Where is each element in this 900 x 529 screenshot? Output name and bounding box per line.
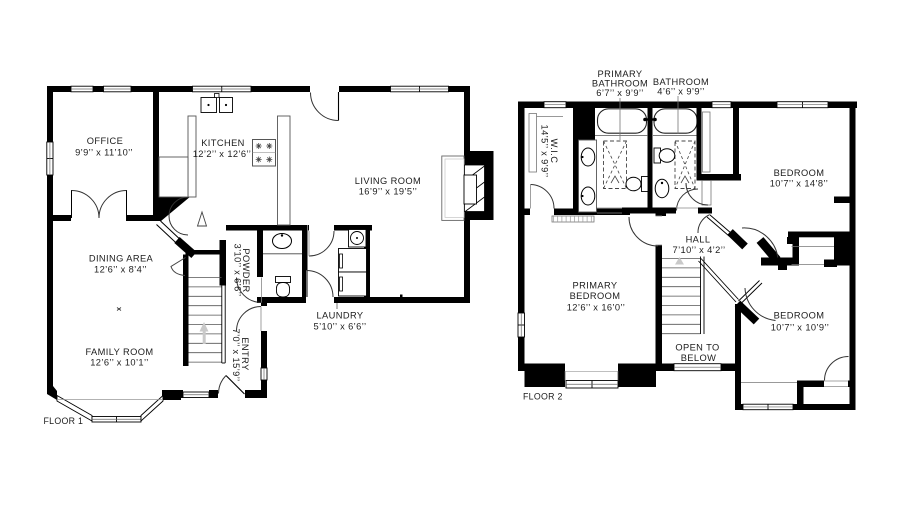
svg-text:FLOOR 2: FLOOR 2 <box>523 392 563 402</box>
svg-text:10’7’’ x 14’8’’: 10’7’’ x 14’8’’ <box>770 179 829 189</box>
svg-text:7’0’’ x 15’9’’: 7’0’’ x 15’9’’ <box>231 329 241 382</box>
svg-text:FAMILY ROOM: FAMILY ROOM <box>85 347 153 357</box>
svg-text:BEDROOM: BEDROOM <box>774 168 825 178</box>
svg-text:7’10’’ x 4’2’’: 7’10’’ x 4’2’’ <box>673 245 726 255</box>
svg-text:PRIMARY: PRIMARY <box>573 281 618 291</box>
svg-text:OPEN TO: OPEN TO <box>675 343 719 353</box>
svg-text:HALL: HALL <box>686 235 711 245</box>
svg-text:5’10’’ x 6’6’’: 5’10’’ x 6’6’’ <box>314 322 367 332</box>
svg-text:BELOW: BELOW <box>681 353 717 363</box>
svg-text:3’10’’ x 6’6’’: 3’10’’ x 6’6’’ <box>233 244 243 297</box>
svg-text:12’6’’ x 8’4’’: 12’6’’ x 8’4’’ <box>94 265 147 275</box>
svg-text:14’5’’ x 9’9’’: 14’5’’ x 9’9’’ <box>540 125 550 178</box>
svg-text:10’7’’ x 10’9’’: 10’7’’ x 10’9’’ <box>771 323 830 333</box>
svg-text:12’6’’ x 10’1’’: 12’6’’ x 10’1’’ <box>90 358 149 368</box>
svg-text:OFFICE: OFFICE <box>87 136 124 146</box>
svg-text:LAUNDRY: LAUNDRY <box>316 311 363 321</box>
svg-text:BEDROOM: BEDROOM <box>570 291 621 301</box>
svg-text:W.I.C: W.I.C <box>549 139 559 164</box>
svg-text:KITCHEN: KITCHEN <box>201 138 245 148</box>
svg-text:BATHROOM: BATHROOM <box>653 77 709 87</box>
svg-text:12’6’’ x 16’0’’: 12’6’’ x 16’0’’ <box>567 303 626 313</box>
svg-text:BATHROOM: BATHROOM <box>592 79 648 89</box>
svg-text:16’9’’ x 19’5’’: 16’9’’ x 19’5’’ <box>359 187 418 197</box>
svg-text:BEDROOM: BEDROOM <box>774 311 825 321</box>
svg-text:FLOOR 1: FLOOR 1 <box>44 416 84 426</box>
svg-text:9’9’’ x 11’10’’: 9’9’’ x 11’10’’ <box>75 148 133 158</box>
svg-text:6’7’’ x 9’9’’: 6’7’’ x 9’9’’ <box>596 88 643 98</box>
svg-text:12’2’’ x 12’6’’: 12’2’’ x 12’6’’ <box>193 149 252 159</box>
svg-text:LIVING ROOM: LIVING ROOM <box>355 176 421 186</box>
svg-text:PRIMARY: PRIMARY <box>598 69 643 79</box>
svg-text:4’6’’ x 9’9’’: 4’6’’ x 9’9’’ <box>657 87 704 97</box>
svg-text:DINING AREA: DINING AREA <box>89 254 154 264</box>
